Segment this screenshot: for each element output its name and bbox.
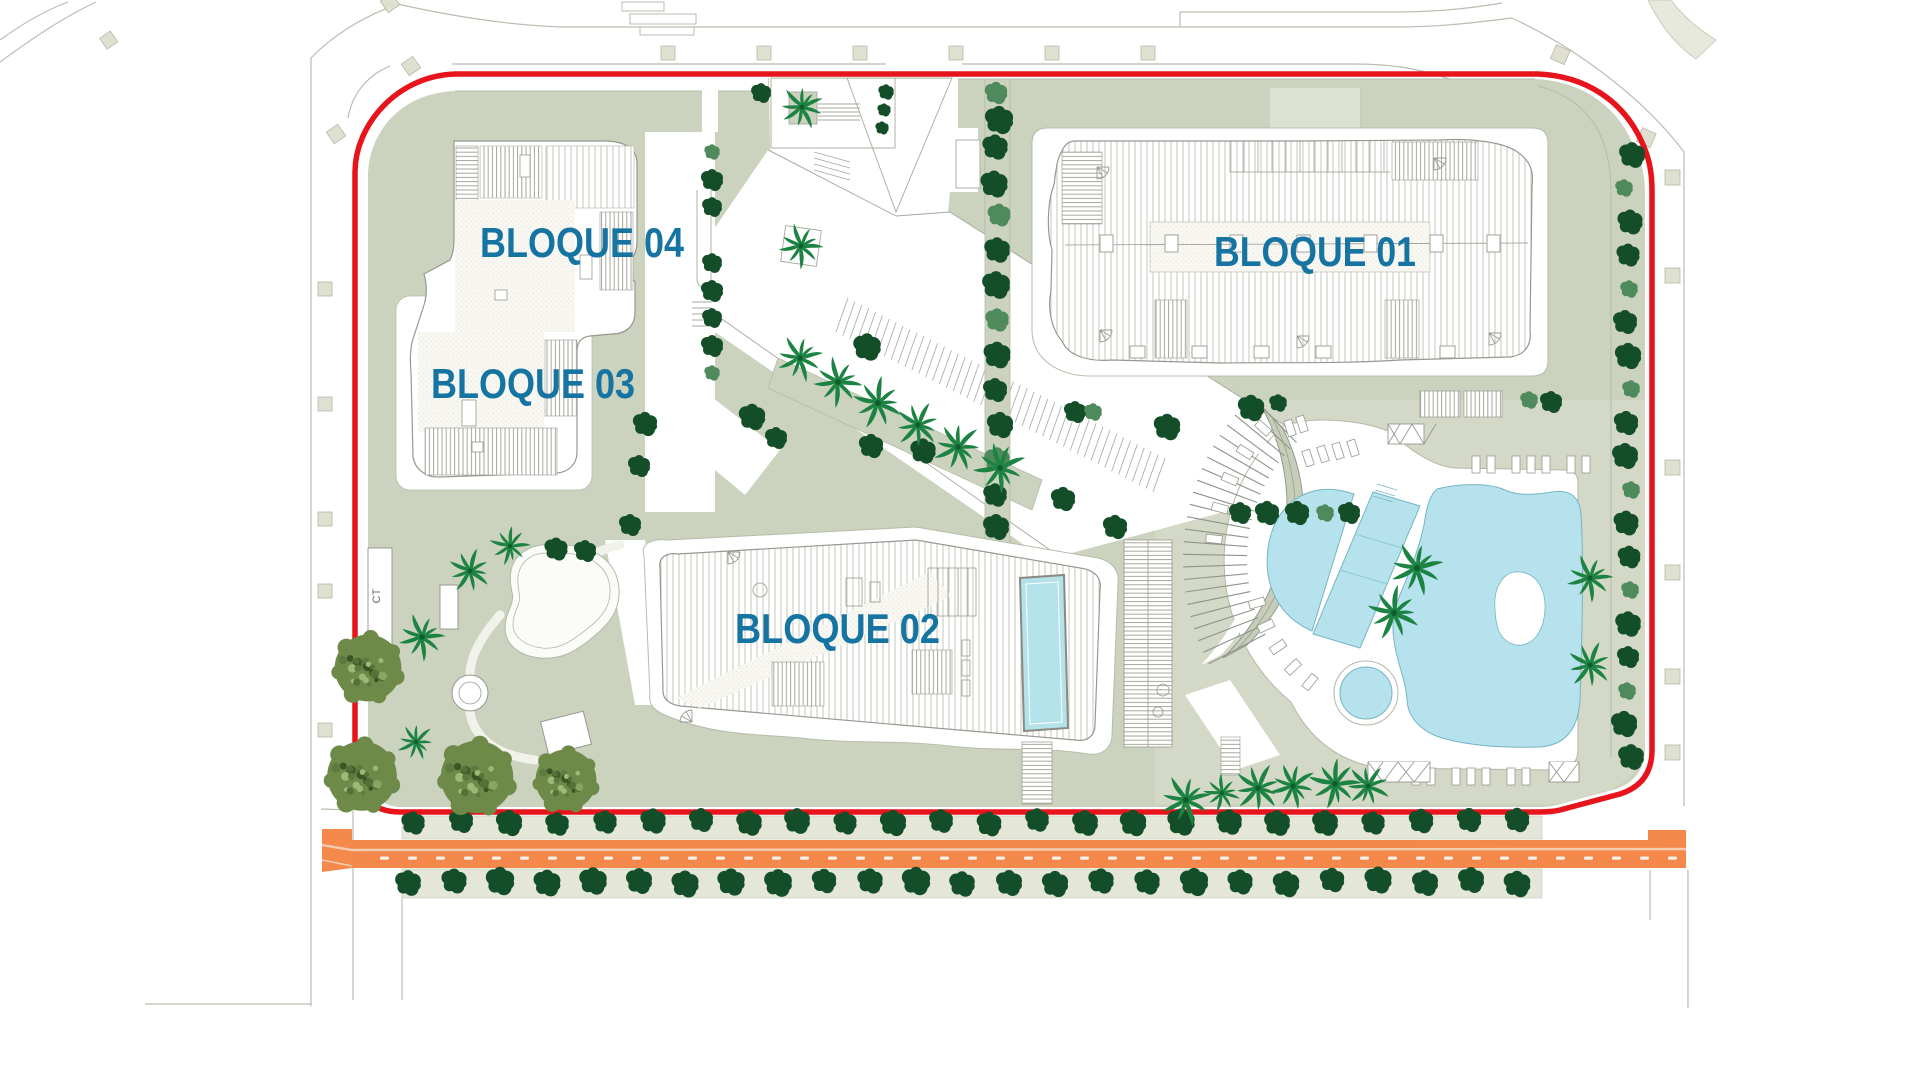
svg-text:BLOQUE 03: BLOQUE 03: [431, 360, 635, 407]
svg-text:BLOQUE 02: BLOQUE 02: [735, 605, 940, 652]
svg-text:BLOQUE 04: BLOQUE 04: [480, 219, 684, 266]
svg-text:BLOQUE 01: BLOQUE 01: [1214, 228, 1416, 275]
svg-text:CT: CT: [371, 588, 383, 603]
